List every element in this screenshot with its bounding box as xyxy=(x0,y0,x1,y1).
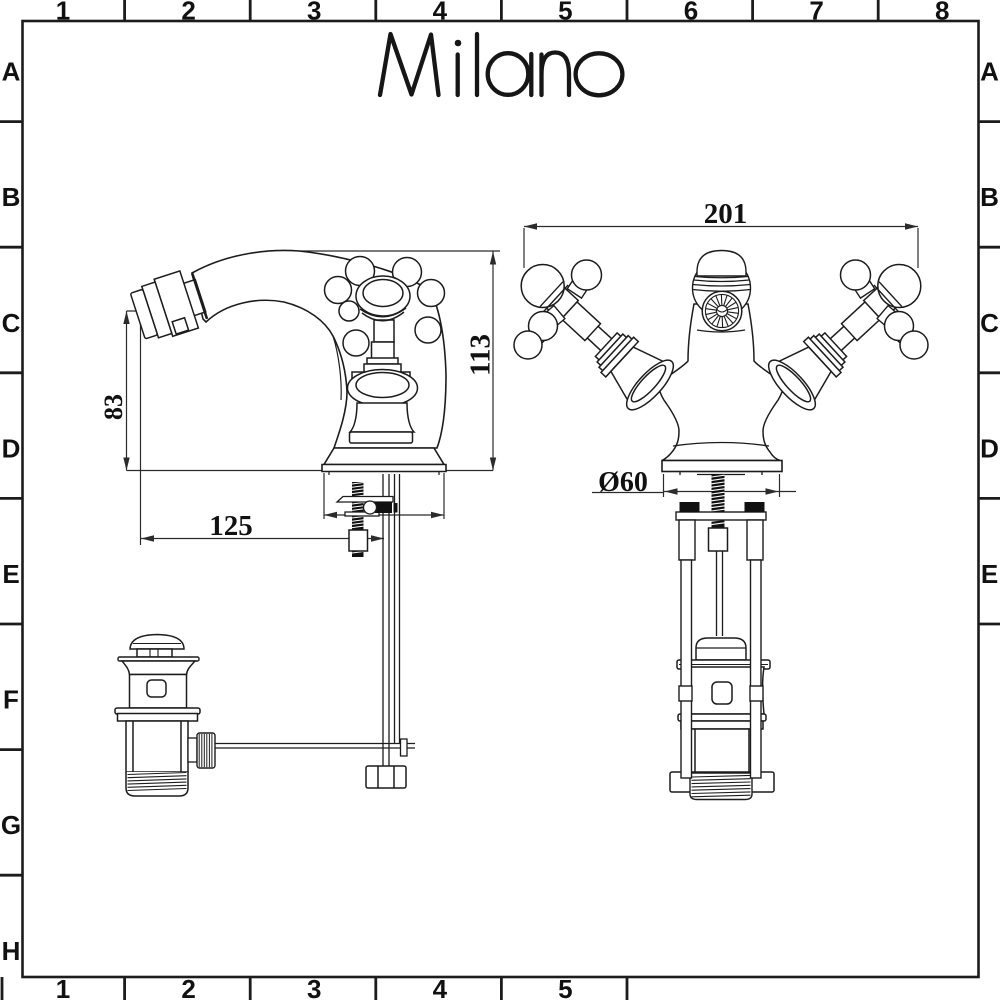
svg-text:6: 6 xyxy=(684,0,698,26)
svg-text:A: A xyxy=(2,57,21,87)
svg-text:2: 2 xyxy=(181,0,195,26)
svg-text:G: G xyxy=(1,810,21,840)
svg-text:8: 8 xyxy=(935,0,949,26)
svg-text:B: B xyxy=(2,182,21,212)
svg-text:125: 125 xyxy=(209,510,253,542)
svg-text:201: 201 xyxy=(704,198,748,230)
svg-text:D: D xyxy=(980,433,999,463)
svg-text:3: 3 xyxy=(307,974,321,1000)
svg-text:4: 4 xyxy=(433,974,448,1000)
svg-text:83: 83 xyxy=(99,394,128,420)
svg-text:Ø60: Ø60 xyxy=(598,467,648,498)
svg-text:5: 5 xyxy=(558,974,572,1000)
svg-text:H: H xyxy=(2,936,21,966)
svg-text:113: 113 xyxy=(465,334,497,376)
svg-text:5: 5 xyxy=(558,0,572,26)
svg-text:1: 1 xyxy=(56,974,70,1000)
svg-text:2: 2 xyxy=(181,974,195,1000)
svg-text:E: E xyxy=(2,559,19,589)
svg-text:1: 1 xyxy=(56,0,70,26)
svg-text:C: C xyxy=(980,308,999,338)
svg-text:4: 4 xyxy=(433,0,448,26)
svg-text:E: E xyxy=(981,559,998,589)
svg-text:D: D xyxy=(2,433,21,463)
svg-text:F: F xyxy=(3,685,19,715)
svg-text:A: A xyxy=(980,57,999,87)
svg-text:7: 7 xyxy=(809,0,823,26)
svg-text:C: C xyxy=(2,308,21,338)
svg-text:3: 3 xyxy=(307,0,321,26)
svg-text:B: B xyxy=(980,182,999,212)
